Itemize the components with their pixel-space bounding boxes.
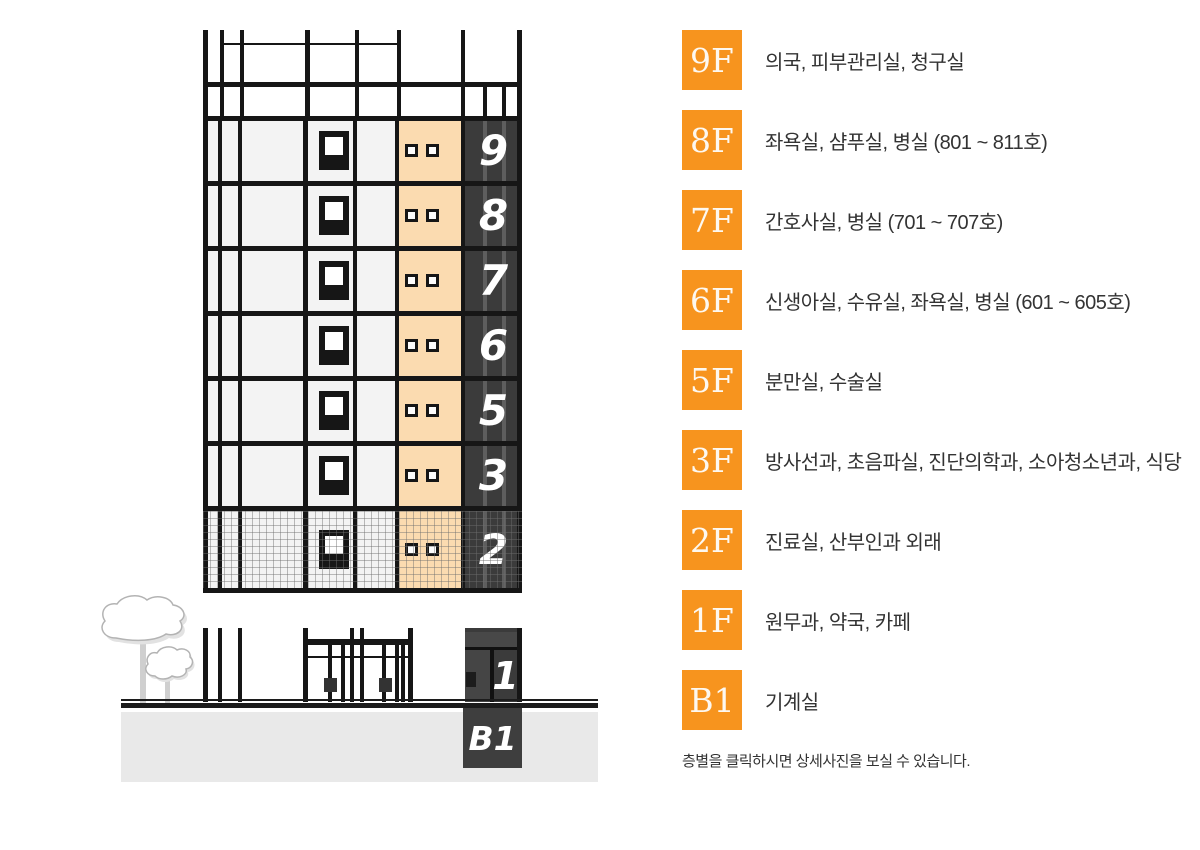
directory-row: B1 기계실 bbox=[682, 670, 1192, 730]
floor-description: 방사선과, 초음파실, 진단의학과, 소아청소년과, 식당 bbox=[765, 446, 1181, 475]
floor-badge-label: 8F bbox=[690, 124, 734, 157]
floor-number-section: 9 bbox=[465, 121, 522, 181]
floor-badge-label: 6F bbox=[690, 284, 734, 317]
floor-badge[interactable]: 7F bbox=[682, 190, 742, 250]
floor-badge-label: 1F bbox=[690, 604, 734, 637]
hospital-floor-guide: 9 8 bbox=[0, 0, 1200, 850]
floor-number-section: 8 bbox=[465, 186, 522, 246]
floor-number-section: 2 bbox=[465, 511, 522, 588]
directory-row: 9F 의국, 피부관리실, 청구실 bbox=[682, 30, 1192, 90]
building-illustration: 9 8 bbox=[0, 0, 640, 850]
floor-description: 신생아실, 수유실, 좌욕실, 병실 (601 ~ 605호) bbox=[765, 286, 1130, 315]
directory-note: 층별을 클릭하시면 상세사진을 보실 수 있습니다. bbox=[682, 750, 970, 771]
building-floors: 9 8 bbox=[203, 116, 522, 593]
directory-row: 1F 원무과, 약국, 카페 bbox=[682, 590, 1192, 650]
tree-canopy bbox=[102, 596, 184, 641]
small-window-icon bbox=[426, 209, 439, 222]
directory-row: 3F 방사선과, 초음파실, 진단의학과, 소아청소년과, 식당 bbox=[682, 430, 1192, 490]
floor-number-label: 3 bbox=[479, 455, 508, 497]
floor-number-label: 8 bbox=[479, 195, 508, 237]
door-handle-icon bbox=[466, 672, 476, 687]
building-floor[interactable]: 8 bbox=[203, 186, 522, 251]
floor-badge-label: 2F bbox=[690, 524, 734, 557]
floor-badge-label: 7F bbox=[690, 204, 734, 237]
floor-number-section: 5 bbox=[465, 381, 522, 441]
window-icon bbox=[319, 196, 349, 235]
small-window-icon bbox=[405, 469, 418, 482]
small-window-icon bbox=[405, 144, 418, 157]
small-window-icon bbox=[426, 274, 439, 287]
window-icon bbox=[319, 530, 349, 569]
floor-description: 간호사실, 병실 (701 ~ 707호) bbox=[765, 206, 1003, 235]
floor-peach-section bbox=[399, 251, 461, 311]
directory-row: 6F 신생아실, 수유실, 좌욕실, 병실 (601 ~ 605호) bbox=[682, 270, 1192, 330]
building-floor[interactable]: 6 bbox=[203, 316, 522, 381]
floor-peach-section bbox=[399, 121, 461, 181]
trees-illustration bbox=[93, 588, 203, 705]
small-window-icon bbox=[405, 209, 418, 222]
small-window-icon bbox=[426, 339, 439, 352]
building-floor[interactable]: 9 bbox=[203, 121, 522, 186]
floor-number-label: B1 bbox=[468, 719, 516, 758]
floor-badge[interactable]: 5F bbox=[682, 350, 742, 410]
floor-description: 진료실, 산부인과 외래 bbox=[765, 526, 941, 555]
building-floor[interactable]: 7 bbox=[203, 251, 522, 316]
small-window-icon bbox=[405, 543, 418, 556]
floor-description: 기계실 bbox=[765, 686, 819, 715]
floor-number-label: 2 bbox=[479, 529, 508, 571]
floor-directory: 9F 의국, 피부관리실, 청구실 8F 좌욕실, 샴푸실, 병실 (801 ~… bbox=[682, 30, 1192, 750]
directory-row: 2F 진료실, 산부인과 외래 bbox=[682, 510, 1192, 570]
ground-floor-number-section: 1 bbox=[465, 628, 522, 702]
floor-peach-section bbox=[399, 316, 461, 376]
ground-line bbox=[121, 703, 598, 708]
floor-number-label: 1 bbox=[494, 650, 517, 702]
floor-badge[interactable]: 8F bbox=[682, 110, 742, 170]
floor-badge-label: B1 bbox=[689, 684, 734, 717]
floor-badge[interactable]: 9F bbox=[682, 30, 742, 90]
door-handle-icon bbox=[379, 678, 392, 692]
window-icon bbox=[319, 391, 349, 430]
ground-line bbox=[121, 699, 598, 701]
building-floor[interactable]: 3 bbox=[203, 446, 522, 511]
floor-badge-label: 5F bbox=[690, 364, 734, 397]
window-icon bbox=[319, 131, 349, 170]
floor-peach-section bbox=[399, 186, 461, 246]
floor-description: 원무과, 약국, 카페 bbox=[765, 606, 911, 635]
floor-number-section: 6 bbox=[465, 316, 522, 376]
directory-row: 8F 좌욕실, 샴푸실, 병실 (801 ~ 811호) bbox=[682, 110, 1192, 170]
building-floor[interactable]: 2 bbox=[203, 511, 522, 593]
small-window-icon bbox=[426, 543, 439, 556]
floor-badge[interactable]: B1 bbox=[682, 670, 742, 730]
ground-soil bbox=[121, 712, 598, 782]
entrance-doors bbox=[303, 628, 413, 702]
floor-description: 분만실, 수술실 bbox=[765, 366, 883, 395]
floor-badge[interactable]: 1F bbox=[682, 590, 742, 650]
building-floor[interactable]: 5 bbox=[203, 381, 522, 446]
floor-badge-label: 3F bbox=[690, 444, 734, 477]
floor-number-label: 6 bbox=[479, 325, 508, 367]
floor-description: 좌욕실, 샴푸실, 병실 (801 ~ 811호) bbox=[765, 126, 1047, 155]
floor-number-section: 3 bbox=[465, 446, 522, 506]
window-icon bbox=[319, 326, 349, 365]
directory-row: 5F 분만실, 수술실 bbox=[682, 350, 1192, 410]
directory-row: 7F 간호사실, 병실 (701 ~ 707호) bbox=[682, 190, 1192, 250]
building-ground-floor[interactable]: 1 bbox=[203, 628, 522, 702]
floor-peach-section bbox=[399, 381, 461, 441]
window-icon bbox=[319, 456, 349, 495]
small-window-icon bbox=[426, 404, 439, 417]
floor-peach-section bbox=[399, 511, 461, 588]
small-window-icon bbox=[405, 274, 418, 287]
door-handle-icon bbox=[324, 678, 337, 692]
floor-description: 의국, 피부관리실, 청구실 bbox=[765, 46, 964, 75]
basement-level[interactable]: B1 bbox=[463, 708, 522, 768]
small-window-icon bbox=[405, 404, 418, 417]
floor-badge-label: 9F bbox=[690, 44, 734, 77]
small-window-icon bbox=[426, 144, 439, 157]
small-window-icon bbox=[405, 339, 418, 352]
floor-badge[interactable]: 3F bbox=[682, 430, 742, 490]
tree-canopy bbox=[146, 647, 193, 679]
floor-number-label: 7 bbox=[479, 260, 508, 302]
window-icon bbox=[319, 261, 349, 300]
floor-number-label: 9 bbox=[479, 130, 508, 172]
floor-badge[interactable]: 2F bbox=[682, 510, 742, 570]
floor-badge[interactable]: 6F bbox=[682, 270, 742, 330]
small-window-icon bbox=[426, 469, 439, 482]
floor-number-label: 5 bbox=[479, 390, 508, 432]
floor-peach-section bbox=[399, 446, 461, 506]
floor-number-section: 7 bbox=[465, 251, 522, 311]
